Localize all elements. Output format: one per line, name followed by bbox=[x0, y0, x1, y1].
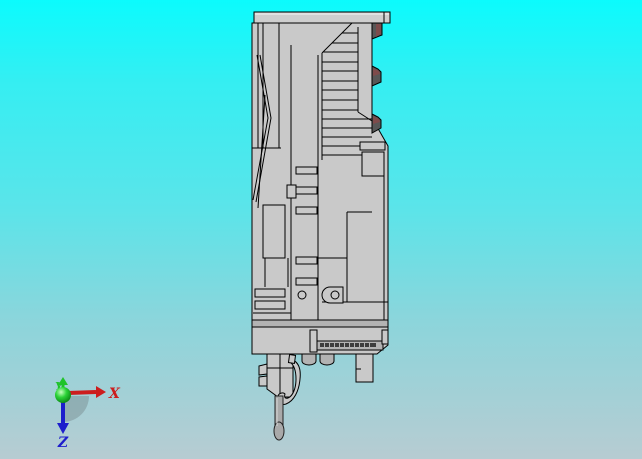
cad-model[interactable] bbox=[252, 12, 390, 440]
viewport[interactable]: Y X Z bbox=[0, 0, 642, 459]
pin-connector-row bbox=[320, 343, 376, 347]
dispense-needle bbox=[274, 396, 284, 440]
z-axis-label: Z bbox=[57, 435, 69, 451]
orientation-triad: Y X Z bbox=[55, 377, 121, 451]
x-axis-label: X bbox=[108, 386, 121, 402]
triad-origin-sphere bbox=[55, 387, 71, 403]
mount-stubs bbox=[302, 354, 334, 365]
support-bracket bbox=[356, 354, 373, 382]
cad-viewer-window: Y X Z bbox=[0, 0, 642, 459]
part-top-cap bbox=[254, 12, 390, 23]
base-band bbox=[252, 320, 388, 327]
side-connector-tabs bbox=[372, 23, 382, 133]
needle-mount-block bbox=[259, 354, 293, 397]
